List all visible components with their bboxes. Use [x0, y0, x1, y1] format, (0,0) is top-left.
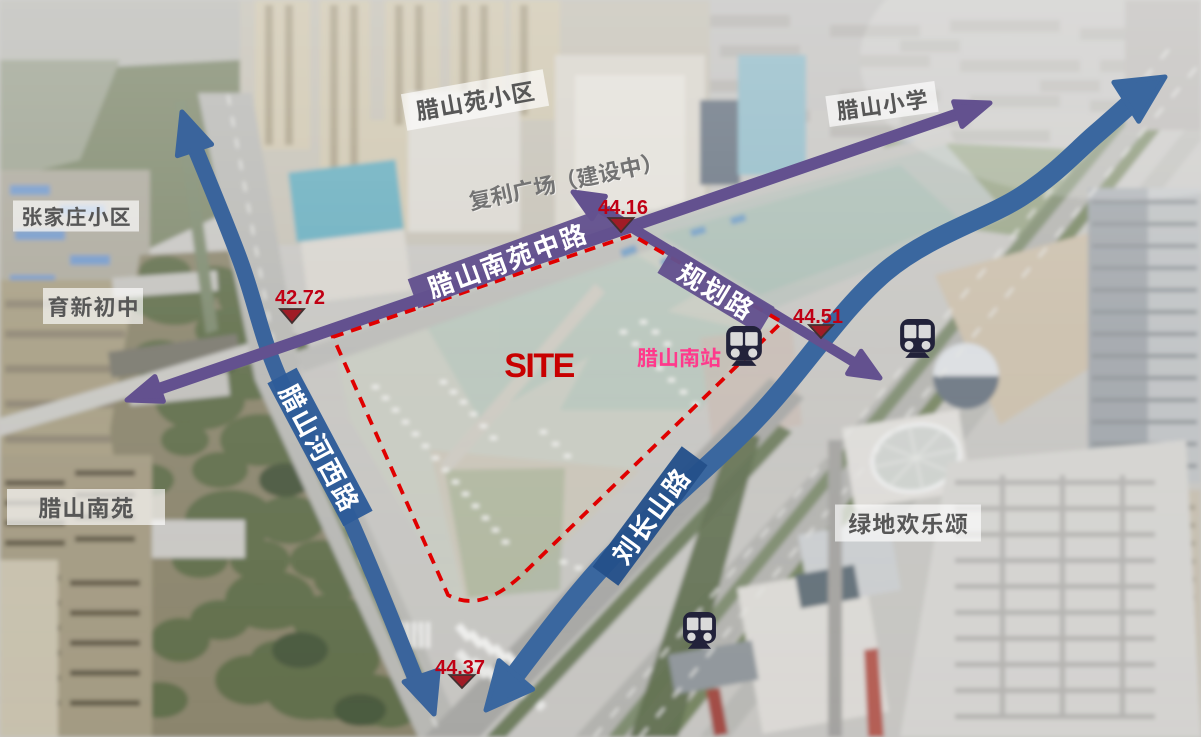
svg-text:44.16: 44.16 — [598, 197, 648, 219]
svg-text:42.72: 42.72 — [275, 287, 325, 309]
svg-text:SITE: SITE — [504, 347, 574, 385]
